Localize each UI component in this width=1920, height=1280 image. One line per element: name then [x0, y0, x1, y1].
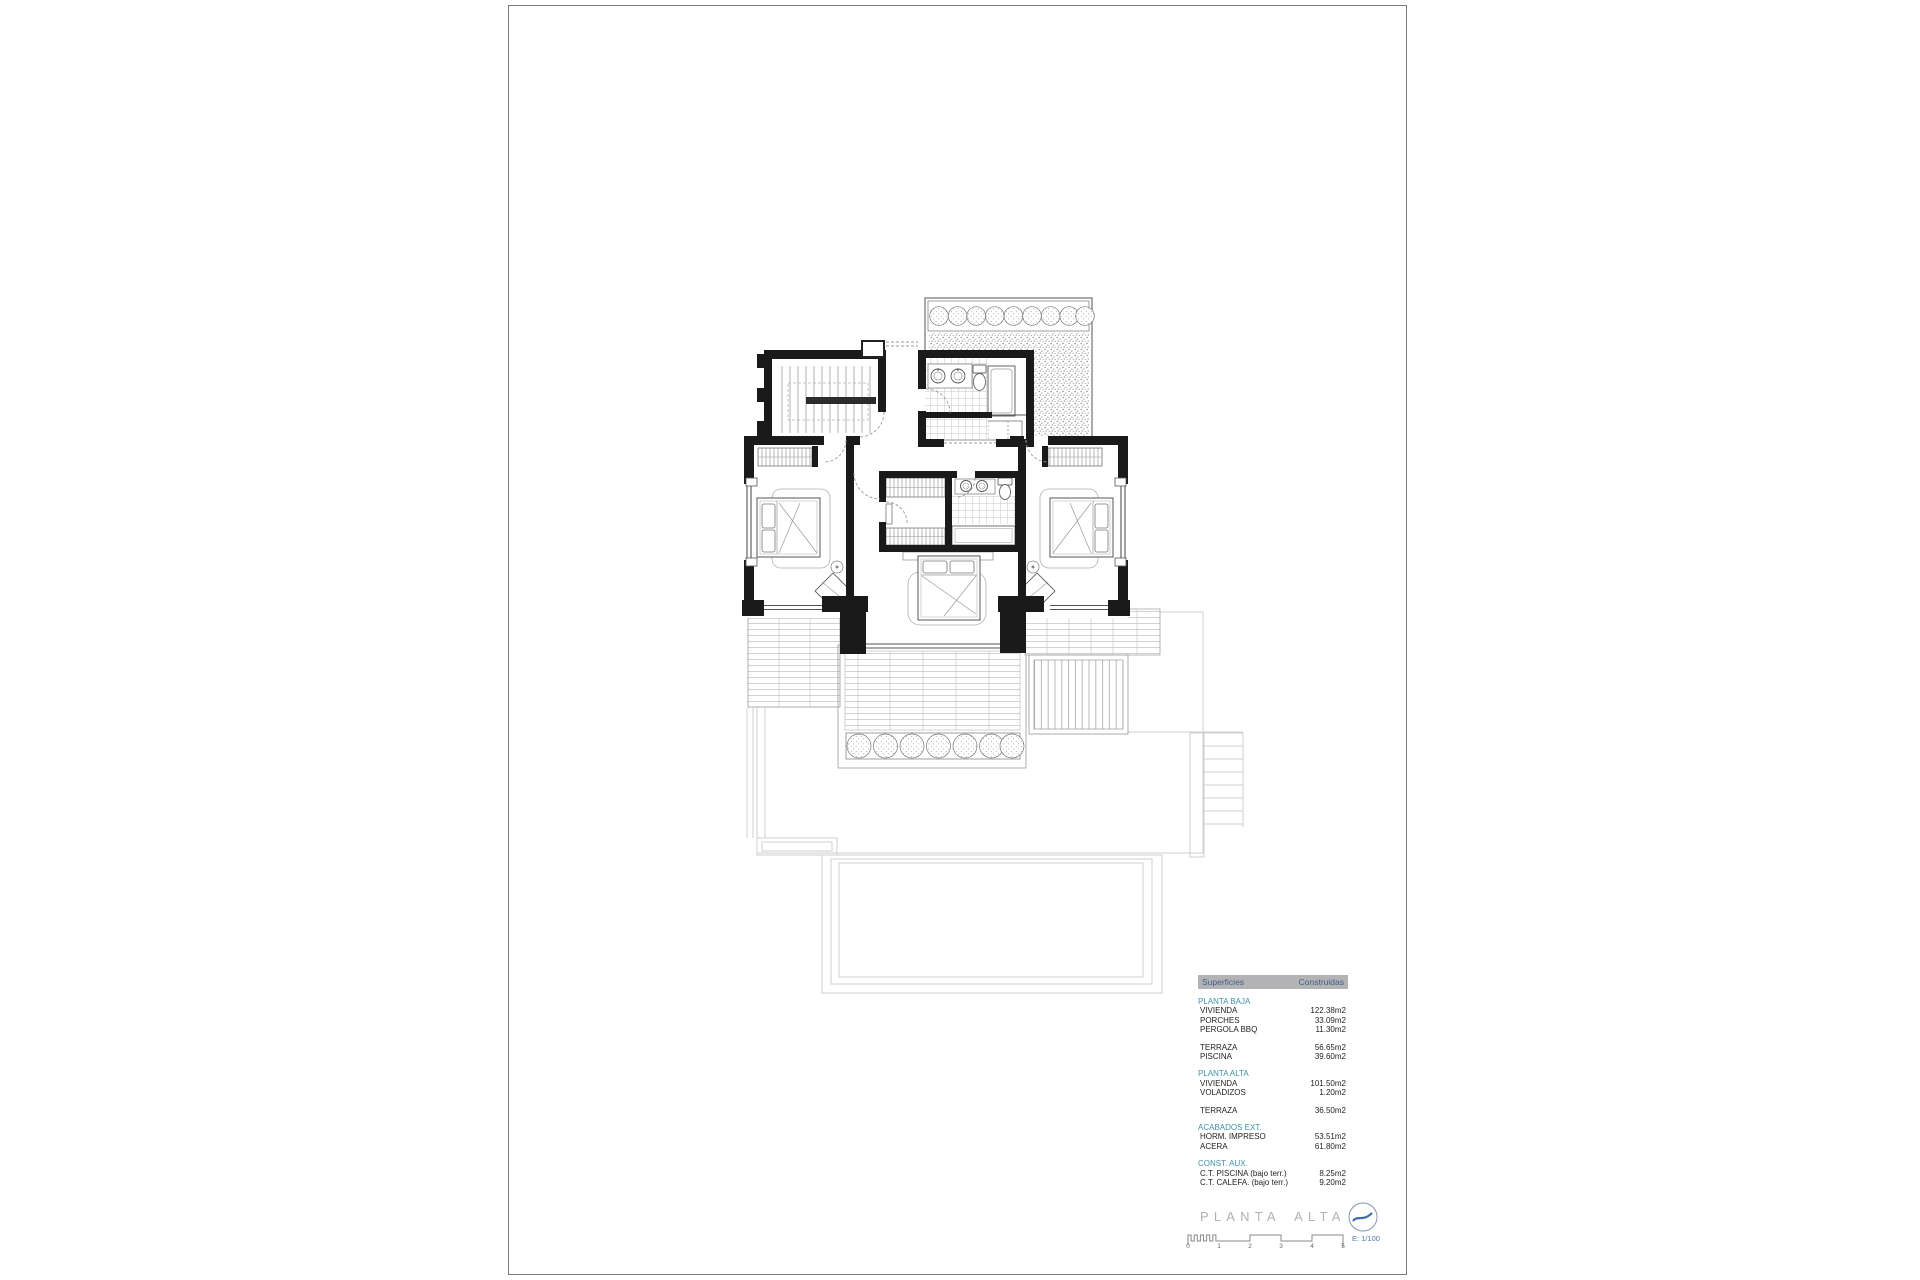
table-row: TERRAZA 56.65m2: [1198, 1043, 1348, 1052]
section-heading: CONST. AUX.: [1198, 1159, 1348, 1168]
col-superficies: Superficies: [1202, 977, 1244, 987]
section-planta-baja: PLANTA BAJA VIVIENDA 122.38m2 PORCHES 33…: [1198, 997, 1348, 1035]
table-row: HORM. IMPRESO 53.51m2: [1198, 1132, 1348, 1141]
scale-number: 0: [1184, 1243, 1192, 1250]
table-row: VOLADIZOS 1.20m2: [1198, 1088, 1348, 1097]
scale-label: E: 1/100: [1352, 1234, 1380, 1243]
table-row: VIVIENDA 122.38m2: [1198, 1006, 1348, 1015]
table-row: PERGOLA BBQ 11.30m2: [1198, 1025, 1348, 1034]
scale-number: 4: [1308, 1243, 1316, 1250]
section-const-aux: CONST. AUX. C.T. PISCINA (bajo terr.) 8.…: [1198, 1159, 1348, 1187]
table-row: C.T. PISCINA (bajo terr.) 8.25m2: [1198, 1169, 1348, 1178]
table-row: ACERA 61.80m2: [1198, 1142, 1348, 1151]
table-row: C.T. CALEFA. (bajo terr.) 9.20m2: [1198, 1178, 1348, 1187]
section-exterior-pb: TERRAZA 56.65m2 PISCINA 39.60m2: [1198, 1043, 1348, 1062]
surfaces-table: Superficies Construidas PLANTA BAJA VIVI…: [1198, 975, 1348, 1188]
section-heading: PLANTA ALTA: [1198, 1069, 1348, 1078]
scale-number: 3: [1277, 1243, 1285, 1250]
col-construidas: Construidas: [1299, 977, 1344, 987]
scale-number: 5: [1339, 1243, 1347, 1250]
scale-number: 1: [1215, 1243, 1223, 1250]
table-row: VIVIENDA 101.50m2: [1198, 1079, 1348, 1088]
table-row: TERRAZA 36.50m2: [1198, 1106, 1348, 1115]
surfaces-table-header: Superficies Construidas: [1198, 975, 1348, 989]
section-heading: ACABADOS EXT.: [1198, 1123, 1348, 1132]
table-row: PORCHES 33.09m2: [1198, 1016, 1348, 1025]
sheet-title: PLANTA ALTA: [1200, 1209, 1346, 1224]
section-acabados-ext: ACABADOS EXT. HORM. IMPRESO 53.51m2 ACER…: [1198, 1123, 1348, 1151]
scale-number: 2: [1246, 1243, 1254, 1250]
table-row: PISCINA 39.60m2: [1198, 1052, 1348, 1061]
section-heading: PLANTA BAJA: [1198, 997, 1348, 1006]
section-planta-alta: PLANTA ALTA VIVIENDA 101.50m2 VOLADIZOS …: [1198, 1069, 1348, 1097]
section-exterior-pa: TERRAZA 36.50m2: [1198, 1106, 1348, 1115]
